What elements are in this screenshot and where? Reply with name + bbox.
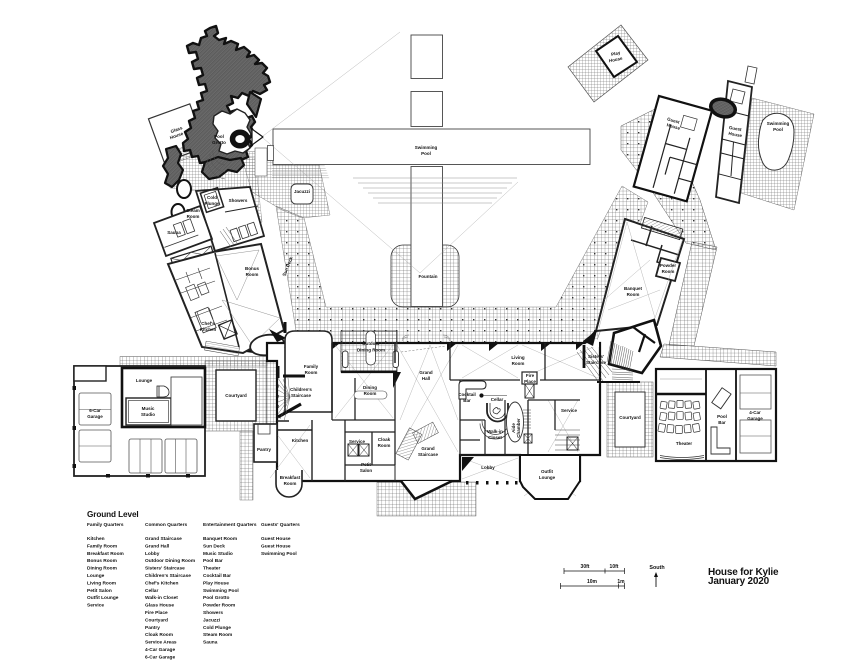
svg-text:Room: Room [662,269,675,274]
svg-text:Fountain: Fountain [419,274,438,279]
svg-text:Family: Family [304,364,319,369]
svg-text:Staircase: Staircase [586,360,607,365]
svg-text:Jacuzzi: Jacuzzi [294,189,310,194]
svg-text:Petit: Petit [361,462,371,467]
svg-text:Sisters': Sisters' [588,354,604,359]
svg-text:Dining Room: Dining Room [87,566,117,572]
svg-text:Room: Room [364,391,377,396]
svg-text:Music: Music [142,406,155,411]
svg-text:Children's Staircase: Children's Staircase [145,573,191,579]
svg-text:Grand: Grand [421,446,435,451]
svg-text:Petit Salon: Petit Salon [87,588,112,594]
svg-text:Studio: Studio [141,412,155,417]
svg-text:South: South [649,565,664,571]
svg-text:Steam: Steam [186,208,200,213]
svg-text:Kitchen: Kitchen [200,327,217,332]
svg-text:Chef's: Chef's [201,321,215,326]
svg-text:Pool Bar: Pool Bar [203,558,223,564]
svg-text:Jacuzzi: Jacuzzi [203,617,220,623]
svg-text:Kitchen: Kitchen [292,438,309,443]
svg-text:Lounge: Lounge [136,378,153,383]
svg-text:Grotto: Grotto [212,140,226,145]
svg-text:Banquet: Banquet [624,286,643,291]
svg-text:1m: 1m [617,579,625,585]
svg-text:Powder Room: Powder Room [203,603,235,609]
svg-text:Room: Room [246,272,259,277]
svg-text:Breakfast Room: Breakfast Room [87,551,124,557]
svg-text:Bar: Bar [463,398,471,403]
svg-text:30ft: 30ft [581,564,590,570]
svg-text:Sisters' Staircase: Sisters' Staircase [145,566,185,572]
svg-text:Cocktail: Cocktail [458,392,476,397]
svg-text:Courtyard: Courtyard [619,415,641,420]
svg-text:Lobby: Lobby [145,551,160,557]
svg-text:Play House: Play House [203,580,229,586]
svg-text:Guests' Quarters: Guests' Quarters [261,522,300,528]
svg-text:Music Studio: Music Studio [203,551,233,557]
svg-text:Room: Room [378,443,391,448]
svg-text:6-Car: 6-Car [89,408,101,413]
svg-text:Cloak Room: Cloak Room [145,632,173,638]
svg-text:Ground Level: Ground Level [87,510,139,519]
svg-text:Showers: Showers [203,610,223,616]
svg-text:Theater: Theater [203,566,220,572]
svg-text:10ft: 10ft [610,564,619,570]
svg-text:Pool Grotto: Pool Grotto [203,595,229,601]
svg-text:Pool: Pool [773,127,783,132]
svg-text:Swimming Pool: Swimming Pool [203,588,239,594]
svg-text:Garage: Garage [87,414,103,419]
svg-text:Pool: Pool [214,134,224,139]
svg-text:Lounge: Lounge [539,475,556,480]
svg-text:Cellar: Cellar [145,588,158,594]
svg-text:Grand: Grand [419,370,433,375]
svg-text:Sauna: Sauna [203,640,218,646]
svg-text:Service: Service [87,603,104,609]
svg-text:Swimming: Swimming [415,145,438,150]
svg-text:Cellar: Cellar [491,397,504,402]
svg-text:Sauna: Sauna [167,230,181,235]
svg-text:Chamber: Chamber [516,418,521,438]
svg-text:Hall: Hall [422,376,430,381]
svg-text:Children's: Children's [290,387,312,392]
svg-text:Courtyard: Courtyard [145,617,168,623]
svg-text:Garage: Garage [747,416,763,421]
svg-text:Common Quarters: Common Quarters [145,522,187,528]
svg-text:Cocktail Bar: Cocktail Bar [203,573,231,579]
svg-text:Guest House: Guest House [261,543,291,549]
svg-text:Breakfast: Breakfast [280,475,301,480]
svg-text:6-Car Garage: 6-Car Garage [145,654,175,660]
svg-text:Cold: Cold [207,195,217,200]
svg-text:Cloak: Cloak [378,437,391,442]
svg-text:Glass House: Glass House [145,603,174,609]
svg-text:Kitchen: Kitchen [87,536,105,542]
svg-text:Outfit: Outfit [541,469,553,474]
svg-text:Grand Staircase: Grand Staircase [145,536,182,542]
svg-text:Guest House: Guest House [261,536,291,542]
svg-text:4-Car: 4-Car [749,410,761,415]
svg-text:Sun Deck: Sun Deck [203,543,225,549]
svg-text:Staircase: Staircase [291,393,312,398]
svg-text:Grand Hall: Grand Hall [145,543,169,549]
svg-text:Entertainment Quarters: Entertainment Quarters [203,522,257,528]
svg-text:Steam Room: Steam Room [203,632,232,638]
svg-text:Salon: Salon [360,468,373,473]
svg-text:Family Quarters: Family Quarters [87,522,124,528]
svg-text:Service Areas: Service Areas [145,640,177,646]
svg-text:Banquet Room: Banquet Room [203,536,237,542]
svg-text:Pantry: Pantry [257,447,272,452]
svg-text:Service: Service [349,439,366,444]
svg-text:Chef's Kitchen: Chef's Kitchen [145,580,178,586]
svg-text:Dining Room: Dining Room [357,348,385,353]
svg-text:Plunge: Plunge [204,201,219,206]
svg-text:Closet: Closet [488,435,502,440]
svg-text:Staircase: Staircase [418,452,439,457]
svg-text:Bonus Room: Bonus Room [87,558,117,564]
svg-text:Room: Room [627,292,640,297]
svg-text:Swimming Pool: Swimming Pool [261,551,297,557]
svg-text:Living Room: Living Room [87,580,116,586]
svg-text:Service: Service [561,408,578,413]
svg-text:Room: Room [187,214,200,219]
svg-text:Courtyard: Courtyard [225,393,247,398]
svg-text:Outdoor: Outdoor [362,341,380,346]
svg-text:Pool: Pool [421,151,431,156]
svg-text:Lobby: Lobby [481,465,495,470]
svg-text:4-Car Garage: 4-Car Garage [145,647,175,653]
svg-text:Walk-in: Walk-in [487,429,503,434]
svg-text:Walk-in Closet: Walk-in Closet [145,595,178,601]
svg-text:Pantry: Pantry [145,625,160,631]
svg-text:10m: 10m [587,579,598,585]
svg-text:Dining: Dining [363,385,377,390]
svg-text:Family Room: Family Room [87,543,117,549]
svg-text:Room: Room [305,370,318,375]
svg-text:Lounge: Lounge [87,573,105,579]
svg-text:Outfit Lounge: Outfit Lounge [87,595,119,601]
svg-text:Cold Plunge: Cold Plunge [203,625,231,631]
svg-text:Fire Place: Fire Place [145,610,168,616]
svg-text:Outdoor Dining Room: Outdoor Dining Room [145,558,195,564]
svg-text:Bar: Bar [718,420,726,425]
svg-text:Fire: Fire [526,373,535,378]
svg-text:January 2020: January 2020 [708,576,770,587]
svg-text:Room: Room [284,481,297,486]
svg-text:Swimming: Swimming [767,121,790,126]
svg-text:Living: Living [511,355,525,360]
svg-text:Place: Place [524,379,536,384]
svg-text:Powder: Powder [660,263,677,268]
svg-text:Theater: Theater [676,441,693,446]
svg-text:Showers: Showers [229,198,248,203]
svg-text:Pool: Pool [717,414,727,419]
svg-text:Bonus: Bonus [245,266,259,271]
svg-text:Room: Room [512,361,525,366]
